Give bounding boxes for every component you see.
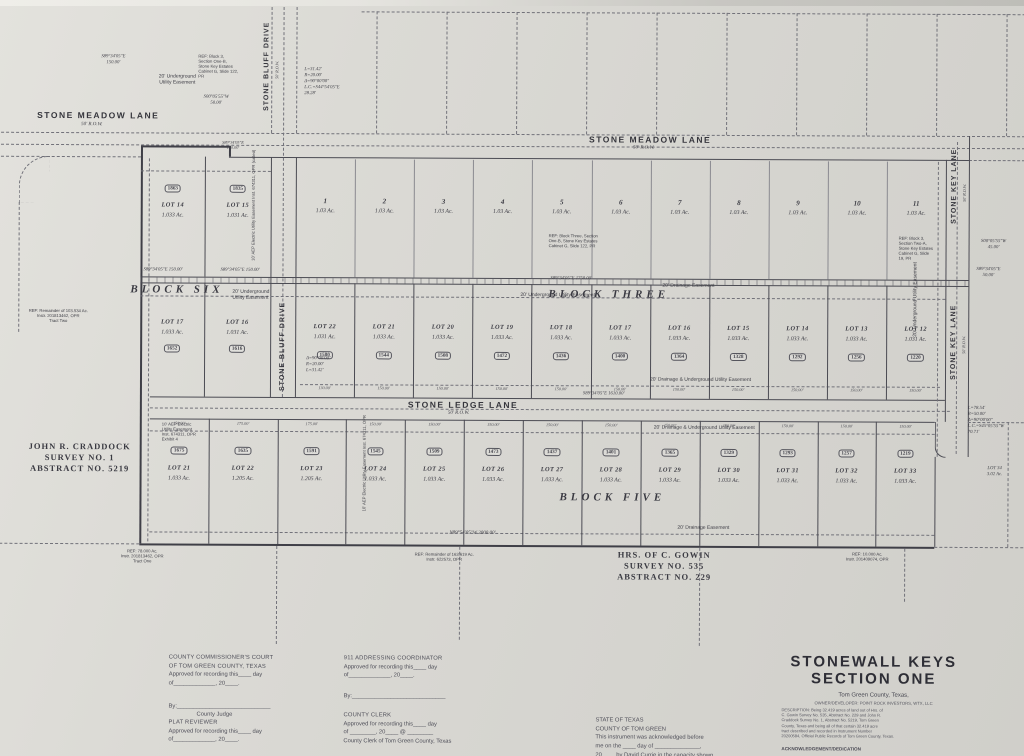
lot-number: 2: [383, 197, 387, 205]
plat-line: [817, 421, 819, 546]
form-heading: COUNTY COMMISSIONER'S COURT: [169, 654, 339, 663]
lot-acreage: 1.03 Ac.: [611, 209, 630, 215]
lot-number: 3: [442, 198, 446, 206]
lot-acreage: 1.033 Ac.: [168, 476, 190, 482]
address-badge: 1401: [603, 448, 619, 456]
lot-number: 4: [501, 198, 505, 206]
street-meadow-mid-row: 50' R.O.W.: [633, 146, 654, 153]
address-badge: 1329: [721, 449, 737, 457]
lot-number: 1: [324, 197, 328, 205]
frontage-dim: 150.00': [841, 423, 853, 428]
esmt-util-b6-top: 20' Underground Utility Easement: [159, 73, 196, 86]
plat-line: [886, 286, 887, 400]
plat-line: [204, 157, 206, 277]
esmt-aep-b6: 10' AEP Electric Utility Easement Inst. …: [251, 150, 257, 261]
lot-acreage: 1.033 Ac.: [668, 336, 690, 342]
plat-title-line1: STONEWALL KEYS: [774, 653, 974, 671]
signature-line: By:_____________________________: [344, 692, 524, 701]
frontage-dim: 150.00': [436, 386, 448, 391]
lot-acreage: 1.033 Ac.: [718, 478, 740, 484]
frontage-dim: 175.00': [237, 421, 249, 426]
dashed-line: [18, 202, 20, 332]
address-badge: 1652: [164, 344, 180, 352]
dashed-line: [1, 156, 141, 158]
form-plat-reviewer: PLAT REVIEWER Approved for recording thi…: [168, 719, 338, 746]
lot-acreage: 1.033 Ac.: [550, 335, 572, 341]
address-badge: 1436: [553, 352, 569, 360]
lot-label: LOT 16: [668, 325, 691, 332]
plat-line: [414, 160, 416, 278]
dashed-line: [446, 12, 448, 134]
plat-line: [886, 162, 888, 280]
street-bluff-top-row: 50' R.O.W.: [274, 61, 279, 79]
address-badge: 1509: [426, 448, 442, 456]
lot-acreage: 1.033 Ac.: [373, 334, 395, 340]
lot-number: 9: [796, 199, 800, 207]
street-meadow-left: STONE MEADOW LANE: [37, 110, 159, 122]
lot-acreage: 1.033 Ac.: [364, 476, 386, 482]
dashed-line: [1006, 14, 1008, 136]
esmt-drain-b5: 20' Drainage Easement: [677, 525, 729, 531]
form-line: of_____________, 20____.: [168, 736, 338, 745]
lot-label: LOT 21: [168, 464, 191, 471]
dashed-line: [516, 12, 518, 134]
plat-line: [945, 160, 947, 422]
lot-label: LOT 27: [541, 466, 564, 473]
lot-acreage: 1.03 Ac.: [552, 209, 571, 215]
survey-craddock: JOHN R. CRADDOCK SURVEY NO. 1 ABSTRACT N…: [28, 441, 130, 475]
plat-line: [355, 159, 357, 277]
frontage-dim: 150.00': [428, 422, 440, 427]
dashed-line: [150, 407, 950, 411]
bearing-key2: S89°34'05"E 50.00': [976, 267, 1000, 279]
dashed-line: [362, 11, 1024, 15]
address-badge: 1635: [235, 447, 251, 455]
esmt-util-key: 20' Underground Utility Easement: [912, 262, 919, 337]
curve-mid: Δ=90°00'00" R=20.00' L=31.42': [306, 356, 331, 374]
dashed-line: [296, 7, 298, 133]
address-badge: 1292: [789, 353, 805, 361]
street-key-mid-row: 50' R.O.W.: [961, 336, 966, 354]
bearing-mid130: S89°34'05"E 130.00': [222, 140, 244, 150]
bearing-ledge: S89°34'05"E 1610.00': [583, 391, 625, 397]
lot-label: LOT 15: [727, 325, 750, 332]
lot-acreage: 1.033 Ac.: [727, 336, 749, 342]
dashed-line: [936, 14, 938, 136]
lot-acreage: 1.03 Ac.: [907, 211, 926, 217]
form-commissioners-court: COUNTY COMMISSIONER'S COURT OF TOM GREEN…: [169, 654, 339, 721]
address-badge: 1591: [303, 447, 319, 455]
lot-acreage: 1.03 Ac.: [375, 208, 394, 214]
lot-label: LOT 29: [659, 467, 682, 474]
lot-acreage: 1.033 Ac.: [600, 477, 622, 483]
plat-line: [827, 285, 828, 399]
lot-label: LOT 17: [161, 318, 184, 325]
ref-west: REF: Remainder of 103.534 Ac. Instr. 201…: [29, 308, 88, 323]
plat-line: [531, 284, 532, 398]
esmt-util-b6: 20' Underground Utility Easement: [232, 289, 269, 302]
plat-line: [591, 160, 593, 278]
form-county-clerk: COUNTY CLERK Approved for recording this…: [343, 711, 523, 747]
address-badge: 1472: [494, 352, 510, 360]
frontage-dim: 150.00': [487, 422, 499, 427]
frontage-dim: 150.00': [791, 387, 803, 392]
street-key-mid: STONE KEY LANE: [949, 305, 958, 380]
plat-line: [139, 543, 934, 548]
frontage-dim: 150.00': [673, 387, 685, 392]
plat-line: [346, 419, 348, 544]
plat-line: [532, 160, 534, 278]
esmt-util-b3: 20' Underground Utility Easement: [520, 292, 595, 299]
lot-acreage: 1.033 Ac.: [609, 335, 631, 341]
lot-acreage: 1.033 Ac.: [161, 329, 183, 335]
plat-line: [463, 420, 465, 545]
plat-line: [650, 161, 652, 279]
ref-sw: REF: 78.000 Ac. Instr. 201813462, OPR Tr…: [121, 548, 164, 563]
bearing-north-150a: S89°34'05"E 150.00': [143, 267, 182, 273]
offsite-road-curve: [19, 156, 50, 203]
plat-description: DESCRIPTION: Being 32.419 acres of land …: [773, 707, 973, 740]
lot-label: LOT 32: [835, 467, 858, 474]
dashed-line: [1, 132, 1024, 137]
plat-line: [139, 145, 142, 543]
lot-label: LOT 21: [373, 323, 396, 330]
lot-acreage: 1.031 Ac.: [905, 337, 927, 343]
lot-acreage: 1.03 Ac.: [493, 209, 512, 215]
form-line: STATE OF TEXAS: [595, 716, 785, 726]
frontage-dim: 150.00': [732, 387, 744, 392]
plat-line: [150, 396, 945, 401]
lot-acreage: 1.033 Ac.: [541, 477, 563, 483]
lot-acreage: 1.205 Ac.: [232, 476, 254, 482]
address-badge: 1544: [376, 351, 392, 359]
block-five: BLOCK FIVE: [559, 490, 665, 505]
address-badge: 1364: [671, 353, 687, 361]
lot-acreage: 1.03 Ac.: [434, 209, 453, 215]
plat-subtitle: Tom Green County, Texas,: [774, 692, 974, 699]
lot-label: LOT 33: [894, 468, 917, 475]
street-ledge: STONE LEDGE LANE: [408, 400, 518, 412]
lot-label: LOT 22: [232, 465, 255, 472]
frontage-dim: 150.00': [782, 423, 794, 428]
dashed-line: [934, 547, 1023, 548]
curve-top: L=31.42' R=20.00' Δ=90°00'00" L.C.=S44°5…: [304, 67, 339, 98]
form-line: of_____________, 20____.: [169, 680, 339, 689]
dashed-line: [866, 14, 868, 136]
lot-acreage: 1.033 Ac.: [423, 477, 445, 483]
plat-title-line2: SECTION ONE: [774, 670, 974, 688]
address-badge: 1863: [165, 184, 181, 192]
lot-acreage: 1.03 Ac.: [316, 208, 335, 214]
address-badge: 1256: [848, 353, 864, 361]
title-block: STONEWALL KEYS SECTION ONE Tom Green Cou…: [773, 653, 973, 752]
ref-rowa-right: REF: Block 3, Section Two-A, Stone Key E…: [899, 236, 934, 261]
dashed-line: [376, 11, 378, 133]
form-line: 20____ by David Currie in the capacity s…: [595, 751, 785, 756]
curve-right: L=78.54' R=50.00' Δ=90°00'00" L.C.=S45°0…: [968, 406, 1005, 437]
address-badge: 1219: [897, 450, 913, 458]
lot-acreage: 1.03 Ac.: [848, 210, 867, 216]
dashed-line: [796, 13, 798, 135]
bearing-key1: S00°05'55"W 45.00': [981, 239, 1006, 251]
dashed-line: [147, 158, 150, 541]
lot-label: LOT 22: [313, 323, 336, 330]
street-key-top: STONE KEY LANE: [950, 149, 959, 224]
lot-number: 10: [854, 199, 861, 207]
dashed-line: [904, 549, 905, 602]
acknowledgement-heading: ACKNOWLEDGEMENT/DEDICATION: [773, 746, 973, 752]
owner-developer: OWNER/DEVELOPER: POINT ROCK INVESTORS, W…: [774, 700, 974, 706]
address-badge: 1616: [229, 345, 245, 353]
address-badge: 1437: [544, 448, 560, 456]
ref-s: REF: Remainder of 163.619 Ac. Instr. 622…: [415, 552, 474, 562]
lot-acreage: 1.03 Ac.: [729, 210, 748, 216]
form-heading: PLAT REVIEWER: [168, 719, 338, 728]
lot-acreage: 1.033 Ac.: [659, 478, 681, 484]
form-line: County Clerk of Tom Green County, Texas: [343, 737, 523, 746]
plat-line: [208, 419, 210, 544]
street-meadow-left-row: 50' R.O.W.: [81, 122, 102, 129]
ref-tl: REF: Block 3, Section One-B, Stone Key E…: [198, 54, 238, 79]
frontage-dim: 130.00': [318, 385, 330, 390]
dashed-line: [276, 546, 277, 644]
lot-number: 5: [560, 198, 564, 206]
lot-acreage: 1.033 Ac.: [162, 212, 184, 218]
bearing-tl2: S00°05'55"W 50.00': [204, 95, 229, 107]
bearing-tl: S89°34'05"E 150.00': [101, 54, 125, 66]
bearing-row-c-top: S89°34'05"E 1750.00': [550, 276, 592, 282]
lot-label: LOT 25: [423, 466, 446, 473]
lot-acreage: 1.033 Ac.: [894, 479, 916, 485]
dashed-line: [586, 12, 588, 134]
plat-line: [640, 421, 642, 546]
lot-acreage: 1.033 Ac.: [482, 477, 504, 483]
address-badge: 1835: [230, 185, 246, 193]
lot-acreage: 1.205 Ac.: [301, 476, 323, 482]
plat-line: [404, 420, 406, 545]
form-heading: COUNTY CLERK: [344, 711, 524, 720]
address-badge: 1675: [171, 447, 187, 455]
lot-label: LOT 13: [845, 325, 868, 332]
frontage-dim: 150.00': [555, 386, 567, 391]
plat-line: [141, 145, 229, 147]
frontage-dim: 150.00': [850, 387, 862, 392]
street-bluff-top: STONE BLUFF DRIVE: [262, 22, 271, 111]
plat-line: [229, 157, 969, 161]
survey-gowin: HRS. OF C. GOWIN SURVEY NO. 535 ABSTRACT…: [617, 549, 711, 583]
dashed-line: [1007, 422, 1009, 547]
lot-label: LOT 15: [226, 202, 249, 209]
bearing-north-150b: S89°34'05"E 150.00': [220, 268, 259, 274]
block-six: BLOCK SIX: [130, 282, 223, 297]
plat-line: [768, 285, 769, 399]
lot-number: 8: [737, 199, 741, 207]
lot-label: LOT 28: [600, 466, 623, 473]
frontage-dim: 150.00': [369, 421, 381, 426]
esmt-aep-b5: 10' AEP Electric Utility Easement Inst. …: [361, 415, 366, 511]
lot-acreage: 1.031 Ac.: [226, 330, 248, 336]
plat-line: [204, 283, 205, 397]
frontage-dim: 150.00': [546, 422, 558, 427]
street-bluff-mid: STONE BLUFF DRIVE: [278, 302, 287, 391]
address-badge: 1365: [662, 449, 678, 457]
lot-label: LOT 24: [364, 465, 387, 472]
address-badge: 1400: [612, 352, 628, 360]
lot-acreage: 1.03 Ac.: [670, 210, 689, 216]
lot-number: 11: [913, 200, 920, 208]
address-badge: 1293: [780, 449, 796, 457]
lot-number: 7: [678, 199, 682, 207]
lot-label: LOT 23: [300, 465, 323, 472]
frontage-dim: 150.00': [377, 385, 389, 390]
plat-line: [472, 284, 473, 398]
form-line: of_____________, 20____.: [344, 672, 524, 681]
lot-label: LOT 16: [226, 319, 249, 326]
lot-acreage: 1.033 Ac.: [491, 335, 513, 341]
street-meadow-mid: STONE MEADOW LANE: [589, 134, 711, 146]
lot-acreage: 1.033 Ac.: [777, 478, 799, 484]
lot-label: LOT 19: [491, 324, 514, 331]
plat-line: [413, 284, 414, 398]
dashed-line: [937, 162, 939, 457]
form-notary: STATE OF TEXAS COUNTY OF TOM GREEN This …: [595, 716, 785, 756]
lot-label: LOT 20: [432, 324, 455, 331]
plat-line: [354, 283, 355, 397]
plat-line: [827, 161, 829, 279]
dashed-line: [0, 543, 139, 545]
lot-acreage: 1.033 Ac.: [835, 478, 857, 484]
dashed-line: [969, 160, 1024, 161]
frontage-dim: 175.00': [306, 421, 318, 426]
esmt-du-above: 20' Drainage & Underground Utility Easem…: [650, 377, 751, 384]
street-ledge-row: 50' R.O.W.: [448, 411, 469, 418]
address-badge: 1545: [367, 447, 383, 455]
address-badge: 1508: [435, 352, 451, 360]
lot-number: 6: [619, 198, 623, 206]
lot-label: LOT 30: [717, 467, 740, 474]
street-key-top-row: 50' R.O.W.: [962, 184, 967, 202]
address-badge: 1473: [485, 448, 501, 456]
partial-lot: LOT 34 3.02 Ac.: [987, 466, 1002, 478]
lot-label: LOT 26: [482, 466, 505, 473]
bearing-south: N89°54'05"W 2000.00': [449, 531, 495, 538]
esmt-aep-b5b: 10' AEP Electric Utility Easement Inst. …: [162, 421, 196, 441]
signature-line: By:_____________________________: [169, 702, 339, 711]
lot-acreage: 1.03 Ac.: [788, 210, 807, 216]
form-911-addressing: 911 ADDRESSING COORDINATOR Approved for …: [344, 654, 524, 702]
frontage-dim: 150.00': [496, 386, 508, 391]
photo-of-plat: 11.03 Ac.21.03 Ac.31.03 Ac.41.03 Ac.51.0…: [0, 0, 1024, 756]
lot-label: LOT 17: [609, 324, 632, 331]
address-badge: 1328: [730, 353, 746, 361]
plat-line: [473, 160, 475, 278]
plat-drawing: 11.03 Ac.21.03 Ac.31.03 Ac.41.03 Ac.51.0…: [0, 0, 1024, 756]
frontage-dim: 150.00': [605, 422, 617, 427]
address-badge: 1257: [838, 449, 854, 457]
dashed-line: [656, 13, 658, 135]
ref-se: REF: 10.000 Ac. Instr. 201409074, OPR: [846, 551, 889, 561]
lot-label: LOT 14: [161, 201, 184, 208]
lot-acreage: 1.033 Ac.: [786, 336, 808, 342]
plat-line: [277, 419, 279, 544]
esmt-du-below: 20' Drainage & Underground Utility Easem…: [654, 425, 755, 432]
frontage-dim: 150.00': [909, 388, 921, 393]
lot-acreage: 1.033 Ac.: [432, 335, 454, 341]
plat-line: [709, 161, 711, 279]
lot-acreage: 1.033 Ac.: [846, 336, 868, 342]
lot-acreage: 1.031 Ac.: [227, 213, 249, 219]
plat-line: [581, 420, 583, 545]
lot-label: LOT 31: [776, 467, 799, 474]
ref-rowa-left: REF: Block Three, Section One-B, Stone K…: [549, 233, 598, 248]
form-heading: 911 ADDRESSING COORDINATOR: [344, 654, 524, 663]
lot-acreage: 1.031 Ac.: [314, 334, 336, 340]
plat-line: [934, 457, 936, 547]
lot-label: LOT 18: [550, 324, 573, 331]
frontage-dim: 150.00': [899, 424, 911, 429]
dashed-line: [726, 13, 728, 135]
plat-line: [758, 421, 760, 546]
plat-line: [876, 422, 878, 547]
address-badge: 1220: [907, 354, 923, 362]
plat-sheet: 11.03 Ac.21.03 Ac.31.03 Ac.41.03 Ac.51.0…: [0, 0, 1024, 756]
lot-label: LOT 14: [786, 325, 809, 332]
esmt-drain-b3: 20' Drainage Easement: [662, 283, 714, 289]
plat-line: [768, 161, 770, 279]
plat-line: [522, 420, 524, 545]
